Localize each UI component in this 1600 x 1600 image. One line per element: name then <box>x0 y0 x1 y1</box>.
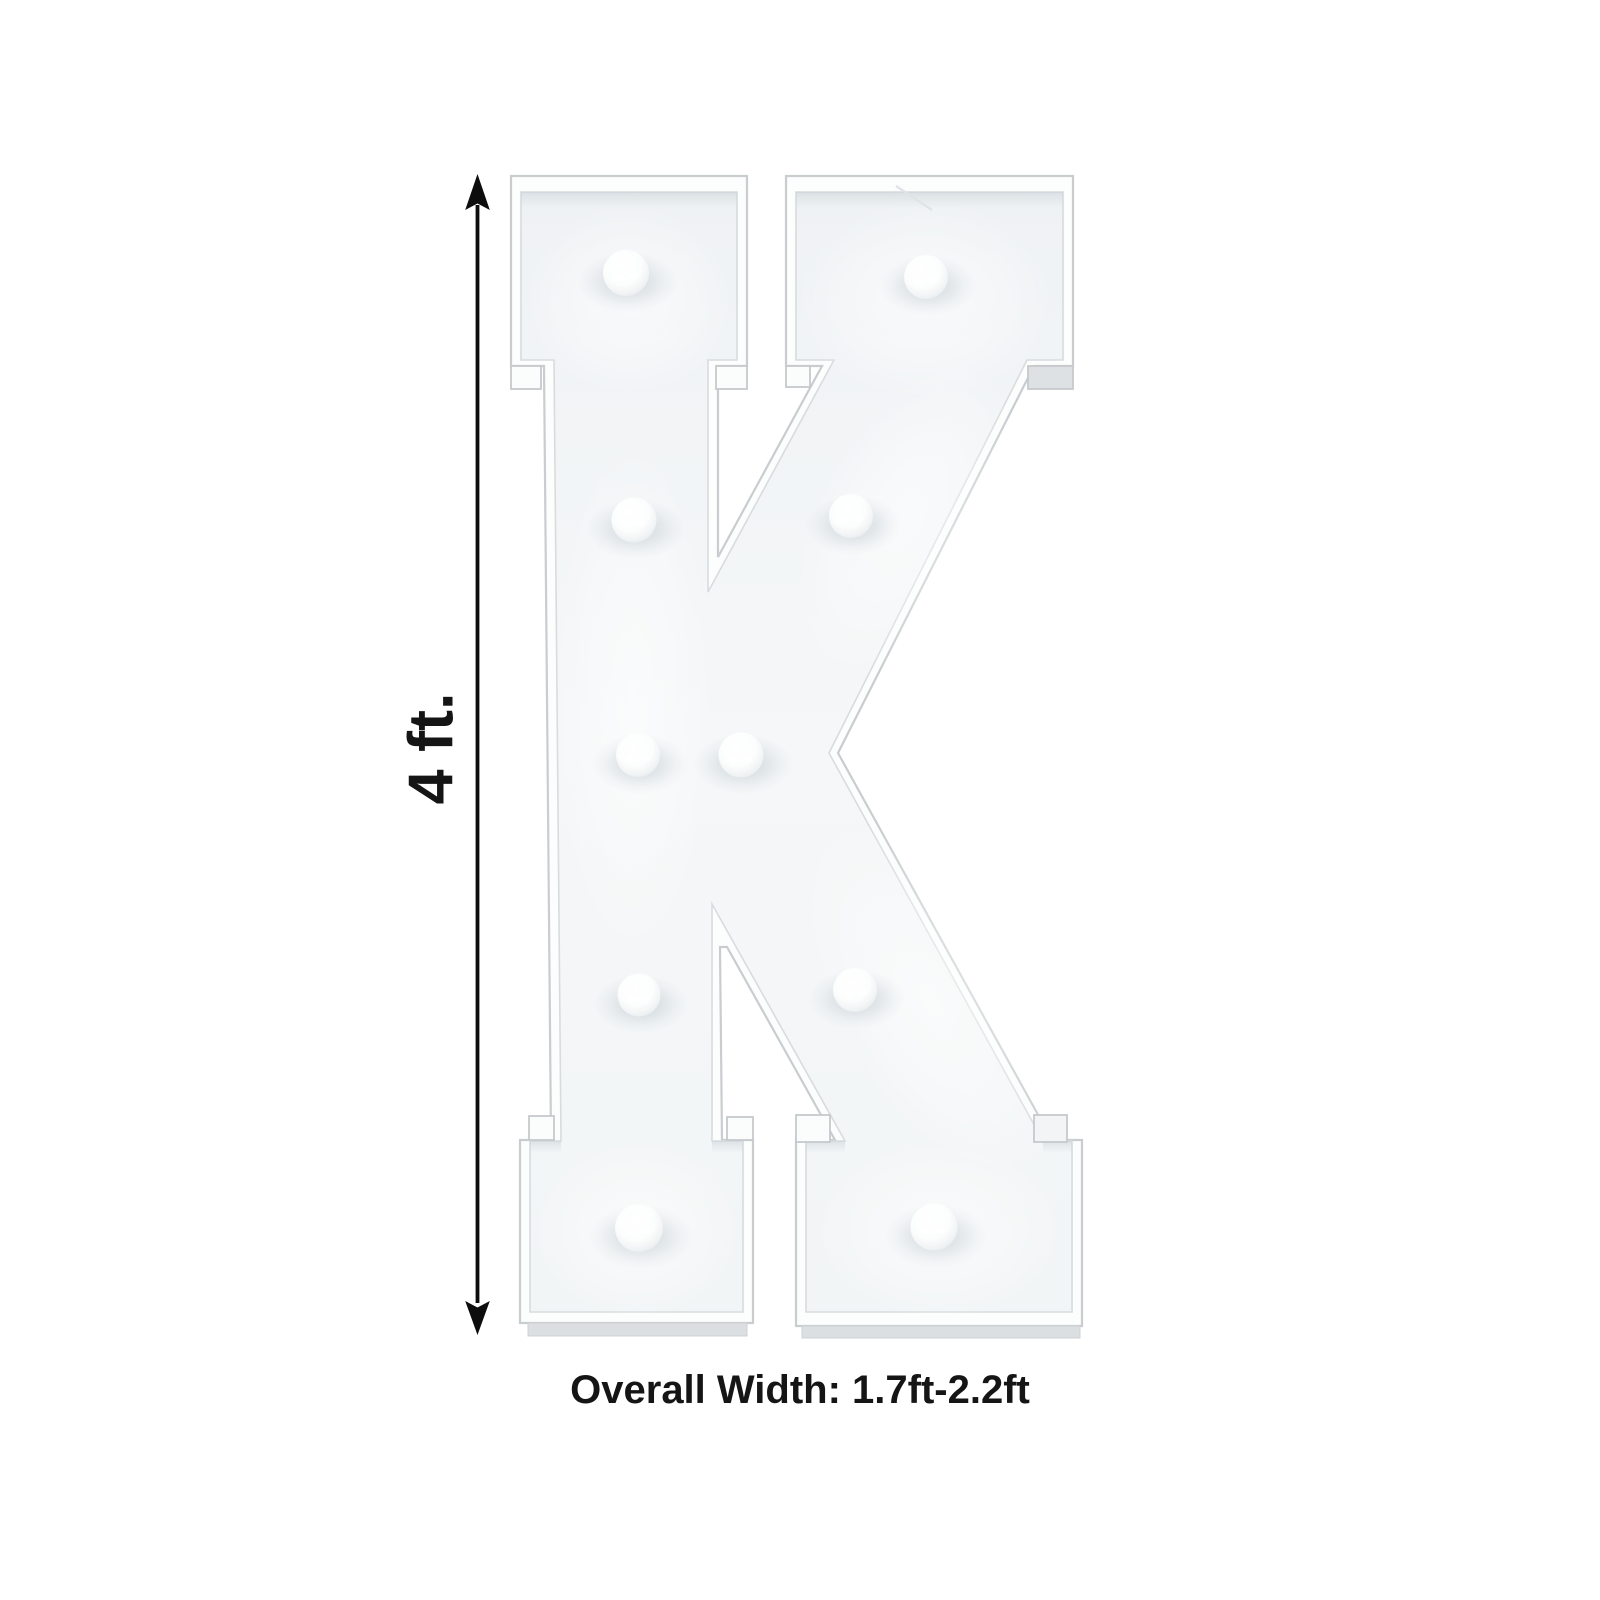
svg-text:4 ft.: 4 ft. <box>397 692 467 804</box>
svg-text:Overall Width: 1.7ft-2.2ft: Overall Width: 1.7ft-2.2ft <box>570 1368 1030 1412</box>
